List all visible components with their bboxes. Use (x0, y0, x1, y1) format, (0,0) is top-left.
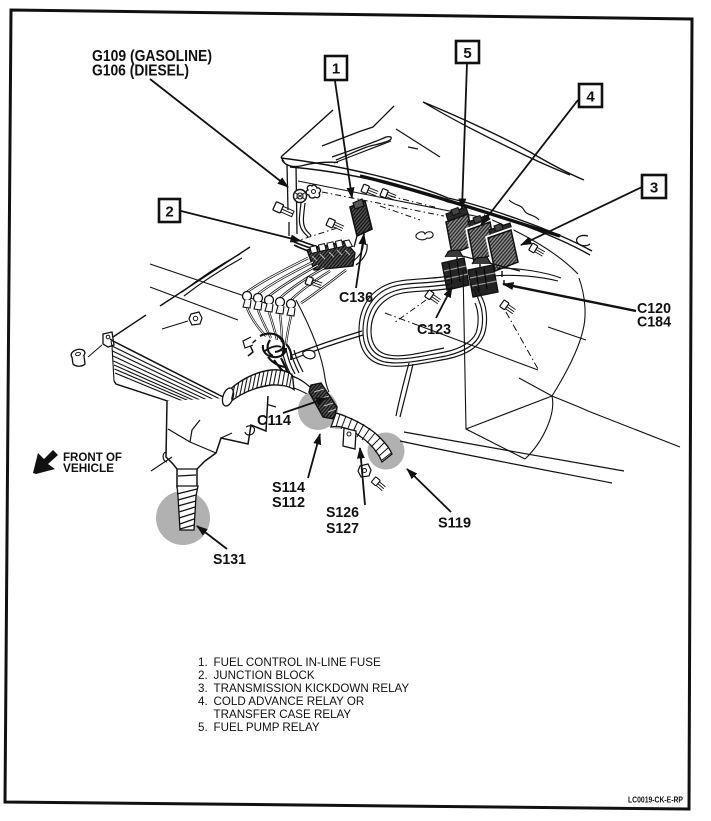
svg-text:TRANSMISSION KICKDOWN RELAY: TRANSMISSION KICKDOWN RELAY (214, 682, 410, 695)
svg-text:G106 (DIESEL): G106 (DIESEL) (92, 63, 189, 80)
svg-text:S112: S112 (272, 494, 305, 511)
svg-text:C184: C184 (637, 314, 672, 331)
svg-text:1.: 1. (198, 656, 208, 669)
svg-text:FUEL CONTROL IN-LINE FUSE: FUEL CONTROL IN-LINE FUSE (214, 656, 382, 669)
svg-text:TRANSFER CASE RELAY: TRANSFER CASE RELAY (214, 708, 352, 721)
svg-text:C114: C114 (257, 412, 292, 429)
svg-text:C123: C123 (417, 321, 451, 338)
svg-text:3: 3 (650, 180, 658, 197)
svg-text:5: 5 (463, 45, 471, 62)
svg-text:VEHICLE: VEHICLE (63, 463, 114, 475)
svg-text:S131: S131 (213, 551, 246, 568)
svg-text:5.: 5. (198, 721, 208, 734)
svg-text:S126: S126 (326, 504, 359, 521)
svg-text:C136: C136 (339, 289, 373, 306)
svg-text:S119: S119 (438, 515, 471, 532)
svg-text:COLD ADVANCE RELAY OR: COLD ADVANCE RELAY OR (214, 695, 365, 708)
svg-text:4: 4 (586, 89, 595, 106)
svg-text:LC0019-CK-E-RP: LC0019-CK-E-RP (628, 795, 683, 805)
svg-text:2.: 2. (198, 669, 208, 682)
svg-text:JUNCTION BLOCK: JUNCTION BLOCK (214, 669, 315, 682)
svg-text:FUEL PUMP RELAY: FUEL PUMP RELAY (214, 721, 320, 734)
svg-text:S127: S127 (326, 520, 359, 537)
svg-text:1: 1 (332, 61, 340, 78)
svg-text:2: 2 (165, 204, 173, 221)
svg-text:4.: 4. (198, 695, 208, 708)
svg-text:3.: 3. (198, 682, 208, 695)
